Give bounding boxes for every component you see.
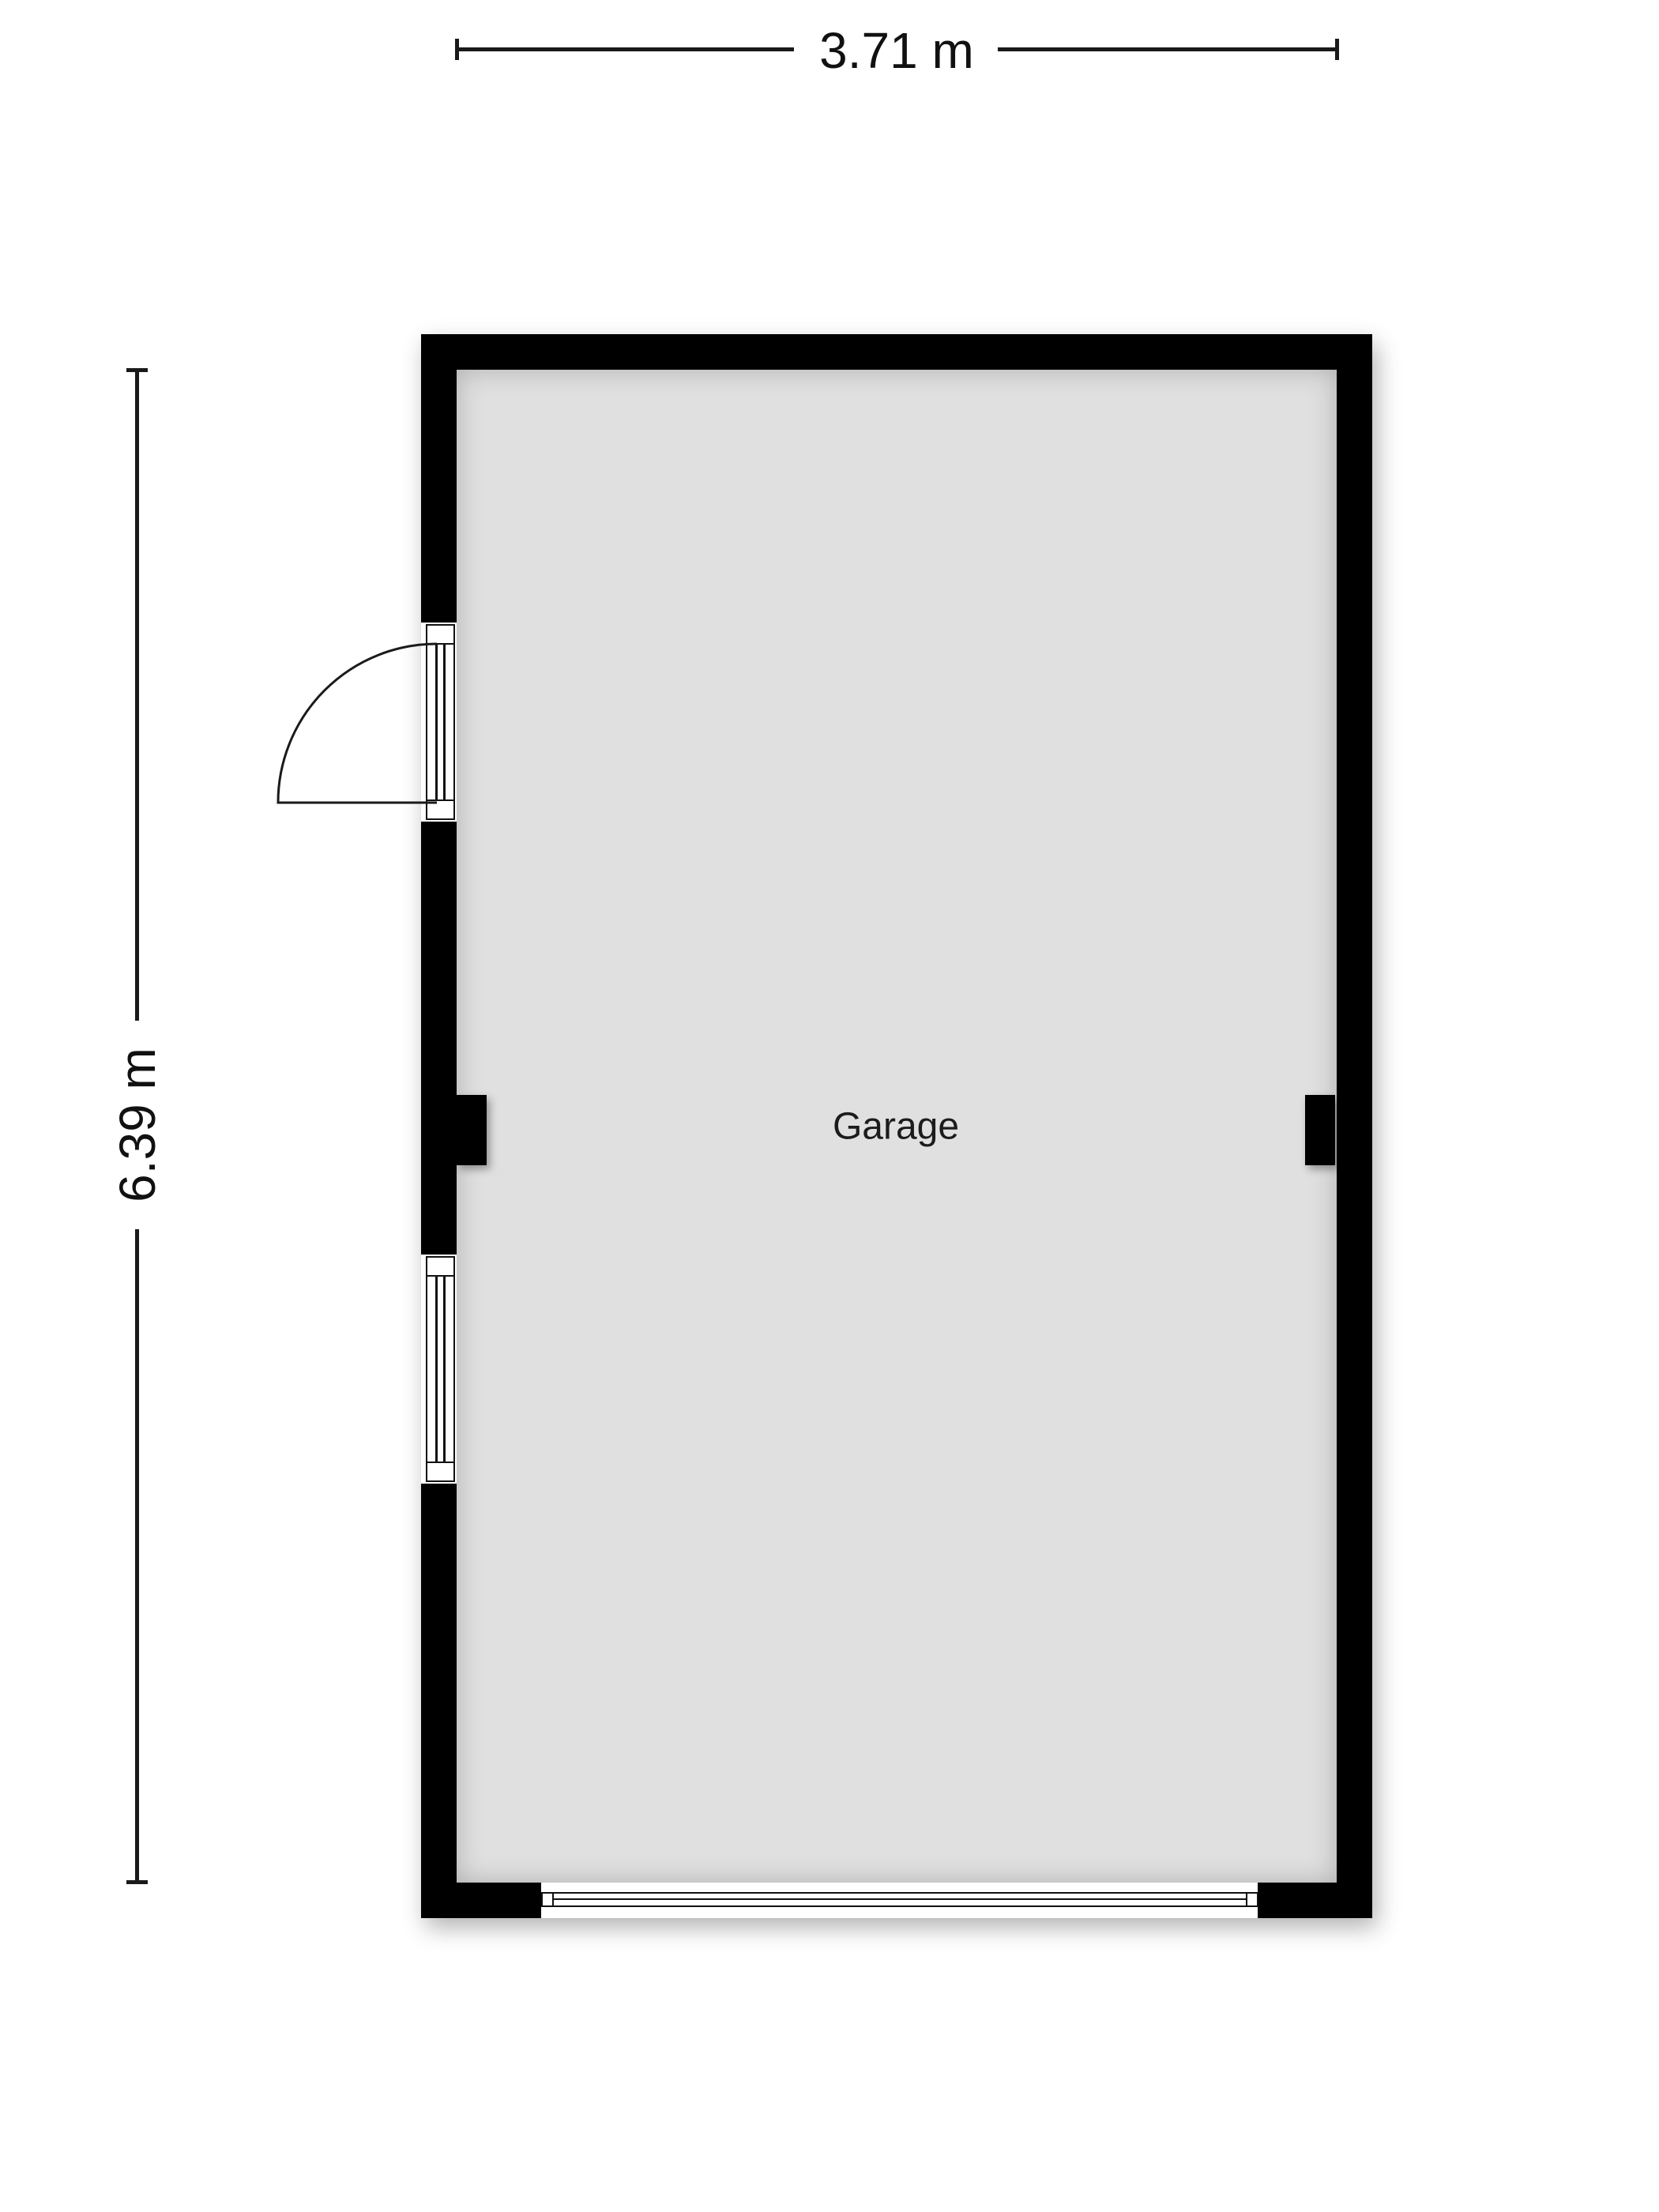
garage-door-cap-right [1246,1892,1258,1907]
floorplan-canvas: 3.71 m 6.39 m [0,0,1659,2212]
door-leaf-closed [427,645,453,799]
dim-top-tick-left [455,39,459,60]
window-pane-line [435,1277,438,1461]
door-frame-top-cell [427,626,453,645]
door-pane-line [435,645,438,799]
window-frame [426,1256,455,1482]
dim-width-label: 3.71 m [819,25,974,76]
dim-top-tick-right [1335,39,1339,60]
dim-top-segment-left [457,47,794,51]
window-pane-line [443,1277,446,1461]
door-frame-bottom-cell [427,799,453,818]
garage-door-centerline [554,1898,1246,1900]
door-pane-line [443,645,446,799]
pillar-left [457,1095,487,1165]
window-frame-bottom-cell [427,1461,453,1480]
dim-left-tick-top [126,368,148,372]
window-frame-top-cell [427,1258,453,1277]
room-label: Garage [833,1105,959,1149]
dim-left-segment-bottom [135,1229,139,1883]
dim-top-segment-right [998,47,1337,51]
pillar-right [1305,1095,1335,1165]
dim-left-segment-top [135,370,139,1021]
window-glazing [427,1277,453,1461]
garage-door-leaf [552,1892,1247,1907]
dim-height-label: 6.39 m [112,1048,163,1202]
door-frame [426,624,455,820]
dim-left-tick-bottom [126,1880,148,1884]
